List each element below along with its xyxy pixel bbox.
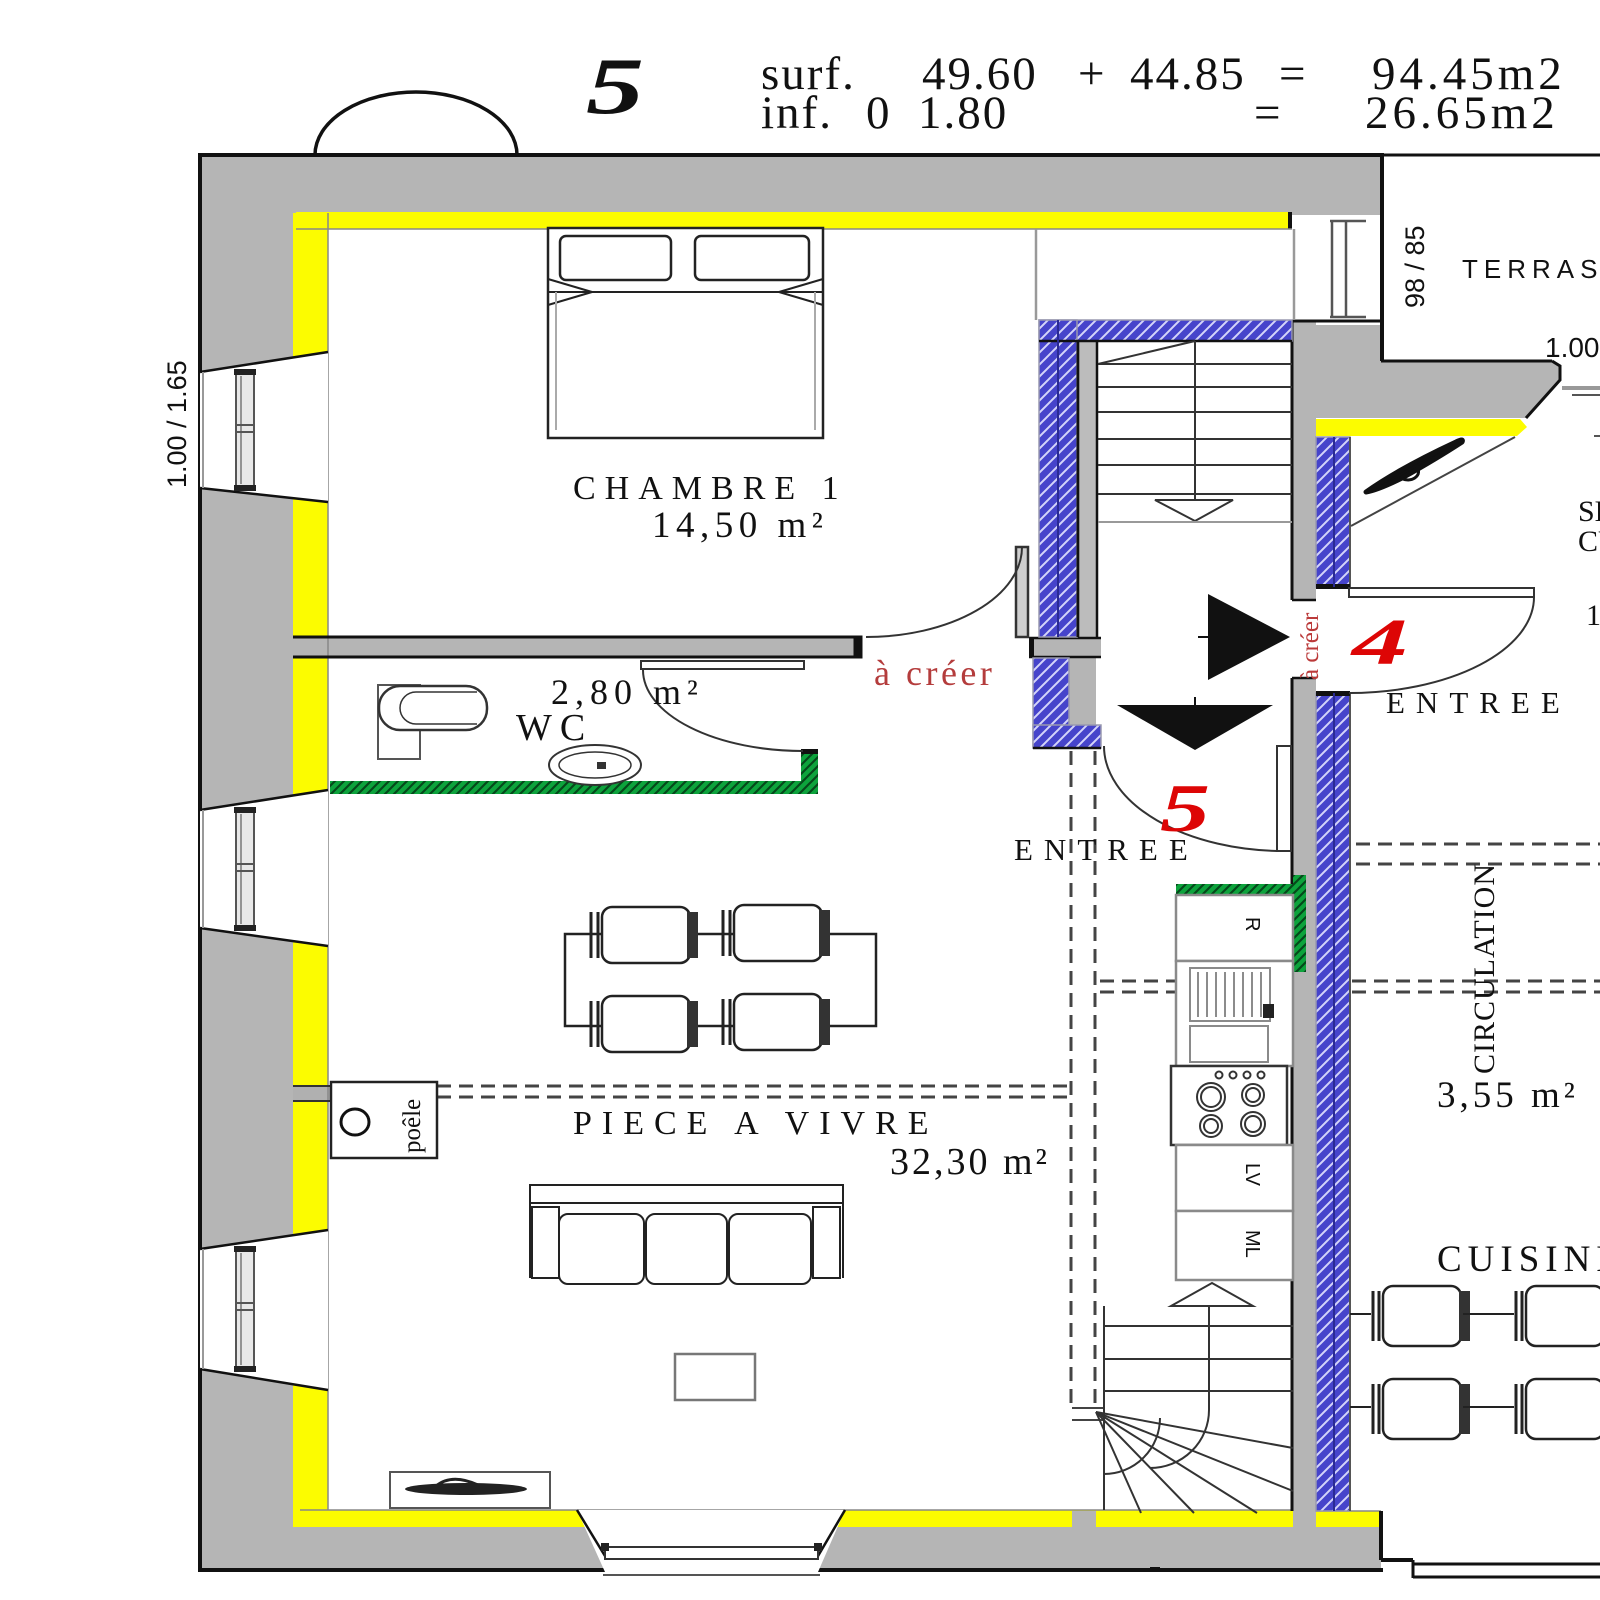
svg-text:98 / 85: 98 / 85 (1400, 225, 1430, 308)
svg-text:5: 5 (1160, 770, 1210, 846)
svg-text:3,55 m²: 3,55 m² (1437, 1075, 1579, 1116)
svg-text:=: = (1254, 87, 1283, 139)
svg-text:CUISINE: CUISINE (1437, 1239, 1600, 1280)
svg-text:CIRCULATION: CIRCULATION (1468, 863, 1501, 1074)
svg-text:SE: SE (1578, 495, 1600, 528)
svg-text:CHAMBRE 1: CHAMBRE 1 (573, 470, 848, 507)
svg-text:ENTREE: ENTREE (1386, 685, 1571, 720)
svg-text:à créer: à créer (874, 653, 995, 693)
svg-text:0: 0 (866, 87, 892, 139)
svg-text:2,80 m²: 2,80 m² (551, 672, 704, 712)
svg-text:32,30 m²: 32,30 m² (890, 1141, 1050, 1183)
svg-text:TERRASSE: TERRASSE (1462, 254, 1600, 284)
svg-text:WC: WC (516, 707, 593, 749)
svg-text:1.00: 1.00 (1545, 332, 1600, 363)
svg-text:4: 4 (1349, 606, 1408, 679)
svg-text:CU: CU (1578, 525, 1600, 558)
svg-text:PIECE A VIVRE: PIECE A VIVRE (573, 1105, 939, 1142)
svg-text:poêle: poêle (399, 1099, 426, 1153)
svg-text:14,50 m²: 14,50 m² (652, 505, 828, 546)
svg-text:1.80: 1.80 (918, 87, 1008, 139)
svg-text:+: + (1078, 48, 1107, 100)
svg-text:14: 14 (1586, 599, 1600, 632)
svg-text:=: = (1279, 48, 1308, 100)
svg-text:26.65m2: 26.65m2 (1365, 87, 1559, 139)
svg-text:1.00 / 1.65: 1.00 / 1.65 (162, 360, 192, 488)
svg-text:5: 5 (586, 43, 644, 131)
svg-text:ML: ML (1241, 1230, 1263, 1258)
svg-text:44.85: 44.85 (1130, 48, 1246, 100)
svg-text:LV: LV (1241, 1163, 1263, 1187)
svg-text:R: R (1241, 917, 1263, 931)
svg-text:inf.: inf. (761, 87, 833, 139)
svg-text:à créer: à créer (1297, 612, 1324, 680)
